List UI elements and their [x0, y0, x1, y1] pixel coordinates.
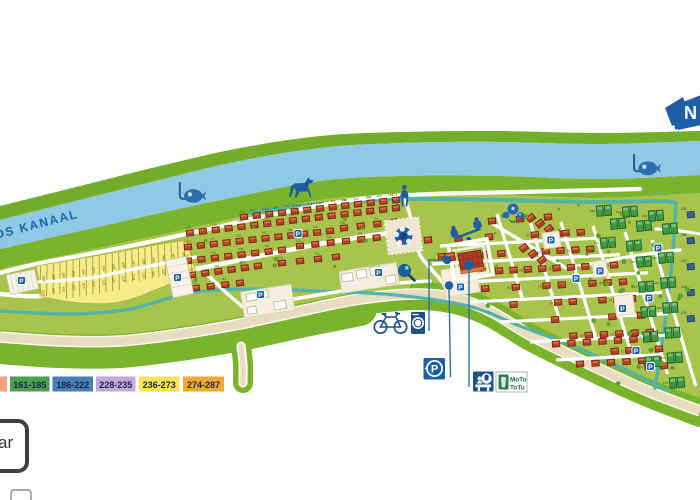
svg-text:P: P [620, 306, 625, 313]
svg-text:175: 175 [663, 381, 668, 385]
svg-text:125: 125 [331, 199, 336, 203]
svg-text:120: 120 [273, 206, 278, 210]
svg-text:97: 97 [609, 298, 613, 302]
svg-text:68: 68 [519, 268, 523, 272]
svg-text:180: 180 [681, 207, 687, 211]
svg-text:P: P [598, 269, 603, 276]
svg-text:168: 168 [642, 214, 647, 218]
svg-text:P: P [648, 364, 653, 371]
svg-text:P: P [175, 275, 180, 282]
svg-text:MoTo: MoTo [510, 377, 527, 384]
svg-text:P: P [258, 292, 263, 299]
svg-text:114: 114 [212, 222, 217, 226]
svg-text:114: 114 [373, 216, 378, 220]
svg-text:172: 172 [594, 241, 599, 245]
svg-text:128: 128 [357, 232, 362, 236]
svg-text:100: 100 [240, 209, 245, 213]
svg-text:129: 129 [377, 194, 382, 198]
svg-text:100: 100 [296, 238, 301, 242]
svg-text:128: 128 [236, 234, 241, 238]
svg-text:P: P [574, 276, 579, 283]
svg-text:190: 190 [681, 259, 687, 263]
svg-text:114: 114 [314, 251, 319, 255]
svg-text:114: 114 [210, 237, 215, 241]
svg-text:91: 91 [567, 249, 571, 253]
svg-text:P: P [647, 296, 652, 303]
svg-text:185: 185 [681, 233, 687, 237]
svg-text:P: P [431, 364, 438, 376]
svg-text:ar: ar [0, 433, 13, 452]
svg-text:114: 114 [211, 250, 216, 254]
svg-text:83: 83 [577, 266, 581, 270]
svg-text:50: 50 [599, 282, 603, 286]
svg-text:171: 171 [659, 331, 664, 335]
svg-text:P: P [458, 285, 463, 292]
svg-text:165: 165 [652, 256, 657, 260]
svg-text:110: 110 [313, 225, 318, 229]
svg-text:15: 15 [538, 285, 542, 289]
svg-text:128: 128 [238, 219, 243, 223]
svg-text:142: 142 [262, 231, 267, 235]
svg-text:110: 110 [315, 210, 320, 214]
svg-text:171: 171 [637, 335, 642, 339]
svg-text:97: 97 [640, 366, 644, 370]
svg-text:138: 138 [366, 204, 371, 208]
svg-text:169: 169 [656, 306, 661, 310]
svg-text:10: 10 [621, 349, 625, 353]
svg-text:P: P [656, 246, 661, 253]
svg-text:65: 65 [580, 334, 584, 338]
svg-text:156: 156 [289, 213, 294, 217]
svg-text:127: 127 [354, 197, 359, 201]
svg-text:114: 114 [327, 235, 332, 239]
svg-text:114: 114 [221, 277, 226, 281]
svg-text:100: 100 [278, 255, 283, 259]
svg-text:173: 173 [639, 360, 644, 364]
svg-text:130: 130 [388, 193, 393, 197]
svg-text:167: 167 [654, 281, 659, 285]
svg-text:114: 114 [214, 264, 219, 268]
svg-text:173: 173 [661, 356, 666, 360]
svg-text:142: 142 [263, 216, 268, 220]
svg-text:99: 99 [550, 301, 554, 305]
svg-text:142: 142 [265, 244, 270, 248]
svg-text:228-235: 228-235 [99, 380, 132, 390]
svg-text:160: 160 [590, 209, 595, 213]
svg-text:33: 33 [548, 267, 552, 271]
svg-text:156: 156 [287, 228, 292, 232]
svg-text:53: 53 [507, 286, 511, 290]
svg-text:N: N [684, 103, 697, 123]
svg-text:ToTu: ToTu [510, 385, 525, 392]
svg-text:124: 124 [341, 207, 346, 211]
svg-text:P: P [549, 238, 554, 245]
svg-text:123: 123 [308, 202, 313, 206]
svg-text:128: 128 [238, 247, 243, 251]
svg-text:186-222: 186-222 [56, 380, 89, 390]
svg-text:P: P [296, 231, 301, 238]
svg-text:P: P [634, 348, 639, 355]
svg-text:128: 128 [365, 196, 370, 200]
svg-text:118: 118 [250, 208, 255, 212]
svg-text:121: 121 [285, 204, 290, 208]
svg-text:124: 124 [319, 201, 324, 205]
svg-text:100: 100 [186, 225, 191, 229]
svg-text:82: 82 [526, 234, 530, 238]
svg-text:236-273: 236-273 [143, 380, 176, 390]
svg-text:P: P [376, 270, 381, 277]
svg-text:100: 100 [184, 239, 189, 243]
svg-text:122: 122 [296, 203, 301, 207]
svg-text:119: 119 [262, 207, 267, 211]
svg-text:165: 165 [630, 260, 635, 264]
svg-text:126: 126 [342, 198, 347, 202]
svg-text:100: 100 [340, 220, 345, 224]
svg-text:P: P [19, 278, 24, 285]
svg-text:274-287: 274-287 [187, 380, 220, 390]
svg-text:161-185: 161-185 [13, 380, 46, 390]
svg-text:63: 63 [611, 333, 615, 337]
svg-text:200: 200 [681, 311, 687, 315]
